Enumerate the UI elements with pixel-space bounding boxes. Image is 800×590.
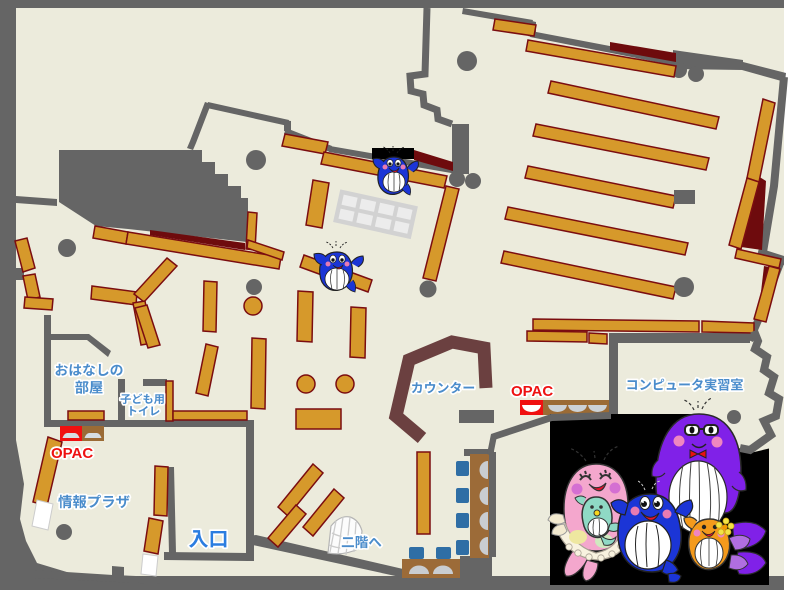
svg-text:OPAC: OPAC [51, 445, 93, 462]
svg-text:OPAC: OPAC [511, 383, 553, 400]
